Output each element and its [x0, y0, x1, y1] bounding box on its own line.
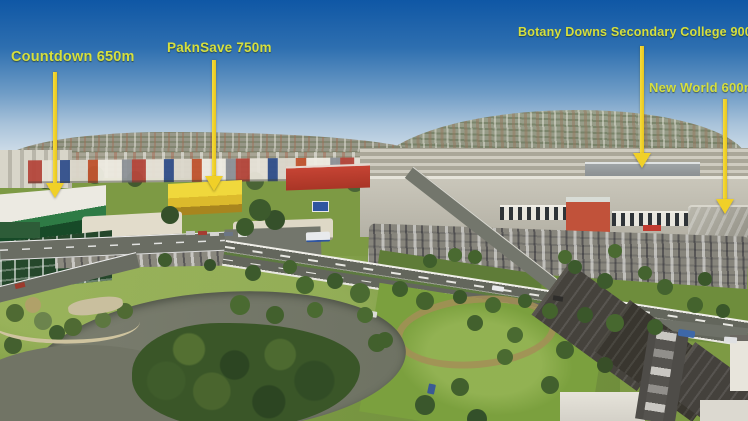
arrow-line	[53, 72, 57, 184]
car	[724, 337, 737, 344]
annotation-label: PaknSave 750m	[167, 40, 272, 55]
annotation-label: New World 600m	[649, 80, 748, 95]
annotation-label: Botany Downs Secondary College 900m	[518, 25, 748, 39]
green-shed	[0, 222, 40, 238]
down-arrow-icon	[205, 176, 223, 191]
tree-island	[132, 323, 360, 421]
red-roof-building	[286, 164, 370, 191]
car	[210, 232, 219, 236]
mall-red-sign	[643, 225, 661, 231]
car	[238, 233, 247, 237]
arrow-line	[212, 60, 216, 177]
down-arrow-icon	[46, 183, 64, 198]
mall-orange-block	[566, 197, 610, 232]
car	[224, 232, 233, 236]
car	[198, 231, 207, 235]
car	[186, 231, 195, 235]
down-arrow-icon	[716, 199, 734, 214]
aerial-photo: Countdown 650m PaknSave 750m Botany Down…	[0, 0, 748, 421]
house-wall	[560, 392, 645, 421]
bus	[306, 232, 330, 243]
arrow-line	[640, 46, 644, 154]
arrow-line	[723, 99, 727, 200]
down-arrow-icon	[633, 153, 651, 168]
white-house	[730, 335, 748, 391]
house-wall	[700, 400, 748, 421]
street-trees	[0, 0, 10, 10]
blue-sign	[312, 201, 329, 212]
annotation-label: Countdown 650m	[11, 49, 135, 65]
